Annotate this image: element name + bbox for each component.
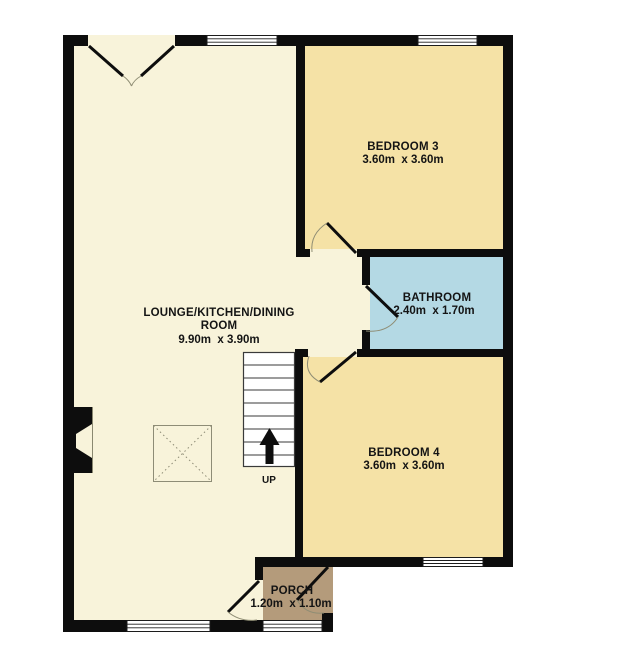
wall-porch-left-stub	[255, 557, 263, 580]
porch-label: PORCH	[271, 585, 314, 597]
wall-left	[63, 35, 74, 632]
wall-bed3-bottom-left	[296, 249, 310, 257]
lounge-label-line2: ROOM	[201, 320, 238, 332]
bathroom-label: BATHROOM	[403, 292, 471, 304]
bathroom-doorway-floor	[362, 285, 370, 330]
floorplan-drawing: UP LOUNGE/KITCHEN/DINING ROOM 9.90m x 3.…	[0, 0, 634, 666]
wall-divider-lounge-bed3	[296, 46, 305, 256]
room-floors	[74, 35, 503, 620]
wall-bathroom-left-upper	[362, 257, 370, 285]
wall-bottom-lounge-left	[63, 620, 127, 632]
hall-floor	[303, 249, 362, 357]
wall-top-2	[175, 35, 207, 46]
bathroom-dims: 2.40m x 1.70m	[393, 305, 474, 317]
window-bedroom4-bottom	[423, 558, 483, 567]
porch-dims: 1.20m x 1.10m	[250, 598, 331, 610]
bedroom3-label: BEDROOM 3	[367, 141, 438, 153]
window-lounge-top	[207, 36, 277, 46]
wall-right	[503, 35, 513, 567]
window-porch-front	[263, 621, 322, 632]
bedroom4-dims: 3.60m x 3.60m	[363, 460, 444, 472]
fireplace	[63, 407, 93, 473]
lounge-dims: 9.90m x 3.90m	[178, 334, 259, 346]
wall-bottom-band-left	[255, 557, 423, 567]
french-door-floor	[88, 35, 175, 46]
bedroom4-label: BEDROOM 4	[368, 447, 440, 459]
wall-stairs	[295, 349, 303, 567]
bedroom3-dims: 3.60m x 3.60m	[362, 154, 443, 166]
wall-bathroom-left-lower	[362, 330, 370, 350]
wall-bottom-band-right	[483, 557, 513, 567]
wall-bottom-lounge-right	[210, 620, 263, 632]
window-bedroom3-top	[418, 36, 477, 46]
floorplan-page: UP LOUNGE/KITCHEN/DINING ROOM 9.90m x 3.…	[0, 0, 634, 666]
wall-porch-right-block	[322, 613, 333, 632]
wall-top-3	[277, 35, 418, 46]
up-label: UP	[262, 475, 276, 486]
staircase: UP	[244, 353, 295, 487]
wall-bed4-top-right	[357, 349, 503, 357]
lounge-label-line1: LOUNGE/KITCHEN/DINING	[143, 307, 294, 319]
lounge-floor	[74, 46, 303, 620]
window-lounge-bottom	[127, 621, 210, 632]
wall-bed3-bottom-right	[357, 249, 503, 257]
